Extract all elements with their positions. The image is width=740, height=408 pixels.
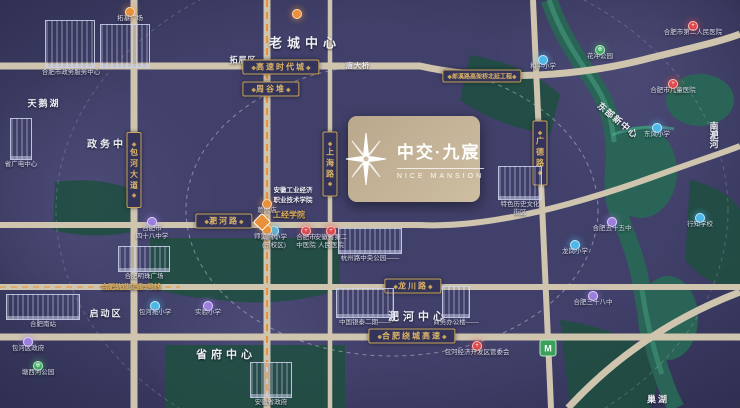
poi-label: 东风小学 [644,131,670,139]
building-icon: 合肥市政务服务中心 [45,20,95,68]
road-gold-label: 工经学院 [273,210,305,221]
project-name-en: NICE MANSION [397,168,484,180]
poi-label: 合肥三十八中 [574,299,613,307]
building-icon: 合肥南站 [6,294,80,320]
area-label: 南淝河 [708,122,721,149]
building-icon: 商务办公楼—— [442,286,470,318]
building-label: 合肥南站 [30,321,56,329]
area-label: 安徽工业经济职业技术学院 [274,184,313,204]
poi-school-blue: 东风小学 [652,123,662,133]
building-label: 特色历史文化街区 [501,201,540,217]
project-name-cn: 中交·九宸 [397,138,481,163]
building-label: 合肥明珠广场 [125,273,164,281]
poi-label: 包河区政府 [12,345,45,353]
building-label: 中国银泰二期—— [339,319,391,327]
poi-plaza: 拓基广场 [125,7,135,17]
poi-school-purple: 包河区政府 [23,337,33,347]
location-map: 老城中心政务中心天鹅湖拓展区唐大桥淝河中心省府中心启动区巢湖南淝河东部新中心安徽… [0,0,740,408]
poi-label: 包河苑小学 [139,309,172,317]
road-badge: ◆高速时代城◆ [242,60,319,75]
road-badge: ◆周谷堆◆ [242,82,299,97]
poi-hospital: +合肥市中医院 [301,226,311,236]
poi-school-blue: 和平小学 [538,55,548,65]
poi-park: ❉塘西河公园 [33,361,43,371]
metro-logo-icon: M [540,340,557,357]
map-overlay: 老城中心政务中心天鹅湖拓展区唐大桥淝河中心省府中心启动区巢湖南淝河东部新中心安徽… [0,0,740,408]
area-label: 天鹅湖 [27,97,60,110]
poi-label: 合肥市儿童医院 [650,87,696,95]
area-label: 巢湖 [647,393,669,406]
building-label: 安徽省政府 [255,399,288,407]
building-icon: 安徽省政府 [250,362,292,398]
project-logo-card: 中交·九宸 NICE MANSION [348,116,480,202]
star-dot-icon [292,9,302,19]
metro-station-badge [256,216,269,229]
building-icon [100,24,150,68]
poi-label: 合肥市第二人民医院 [664,29,723,37]
area-label: 启动区 [89,307,122,320]
road-gold-label: 合肥轨道交通5号线 [101,282,161,292]
poi-label: 合肥市四十八中学 [136,225,169,241]
area-label: 唐大桥 [346,61,370,71]
building-label: 商务办公楼—— [433,319,479,327]
poi-school-blue: 行知学校 [695,213,705,223]
poi-label: 实验小学 [195,309,221,317]
poi-label: 和平小学 [530,63,556,71]
poi-park: ❉花冲公园 [595,45,605,55]
building-icon: 杭州路中央公园—— [338,228,402,254]
poi-plaza [292,9,302,19]
poi-label: 行知学校 [687,221,713,229]
building-label: 杭州路中央公园—— [341,255,400,263]
poi-school-purple: 合肥五十五中 [607,217,617,227]
area-label: 老城中心 [269,33,341,52]
poi-hospital: +安徽省第二人民医院 [326,226,336,236]
area-label: 东部新中心 [595,99,642,141]
poi-school-blue: 龙岗小学 [570,240,580,250]
poi-hospital: +包河经济开发区管委会 [472,341,482,351]
building-icon: 合肥明珠广场 [118,246,170,272]
poi-label: 塘西河公园 [22,369,55,377]
poi-label: 师范附小 [254,233,280,241]
poi-school-purple: 合肥三十八中 [588,291,598,301]
poi-hospital: +合肥市儿童医院 [668,79,678,89]
poi-school-blue: 包河苑小学 [150,301,160,311]
road-badge: ◆合肥绕城高速◆ [368,329,455,344]
building-icon: 特色历史文化街区 [498,166,542,200]
poi-hospital: +合肥市第二人民医院 [688,21,698,31]
building-label: 合肥市政务服务中心 [42,69,101,77]
poi-school-purple: 合肥市四十八中学 [147,217,157,227]
building-label: 省广电中心 [5,161,38,169]
area-label: 省府中心 [196,346,256,362]
poi-label: 包河经济开发区管委会 [445,349,510,357]
metro-badge-icon [253,213,271,231]
road-badge: ◆淝河路◆ [195,214,252,229]
poi-label: 拓基广场 [117,15,143,23]
poi-school-purple: 实验小学 [203,301,213,311]
poi-label: 花冲公园 [587,53,613,61]
building-icon: 省广电中心 [10,118,32,160]
poi-label: 合肥五十五中 [593,225,632,233]
road-badge: ◆包河大道◆ [127,132,142,208]
road-badge: ◆上海路◆ [323,132,338,197]
poi-label: 合肥市中医院 [296,234,316,250]
road-badge: ◆郎溪路高架桥北延工程◆ [442,70,521,83]
poi-metro-station: 葛大店 [262,199,272,209]
building-icon: 中国银泰二期—— [336,288,394,318]
compass-star-icon [344,131,388,187]
poi-label: 龙岗小学 [562,248,588,256]
